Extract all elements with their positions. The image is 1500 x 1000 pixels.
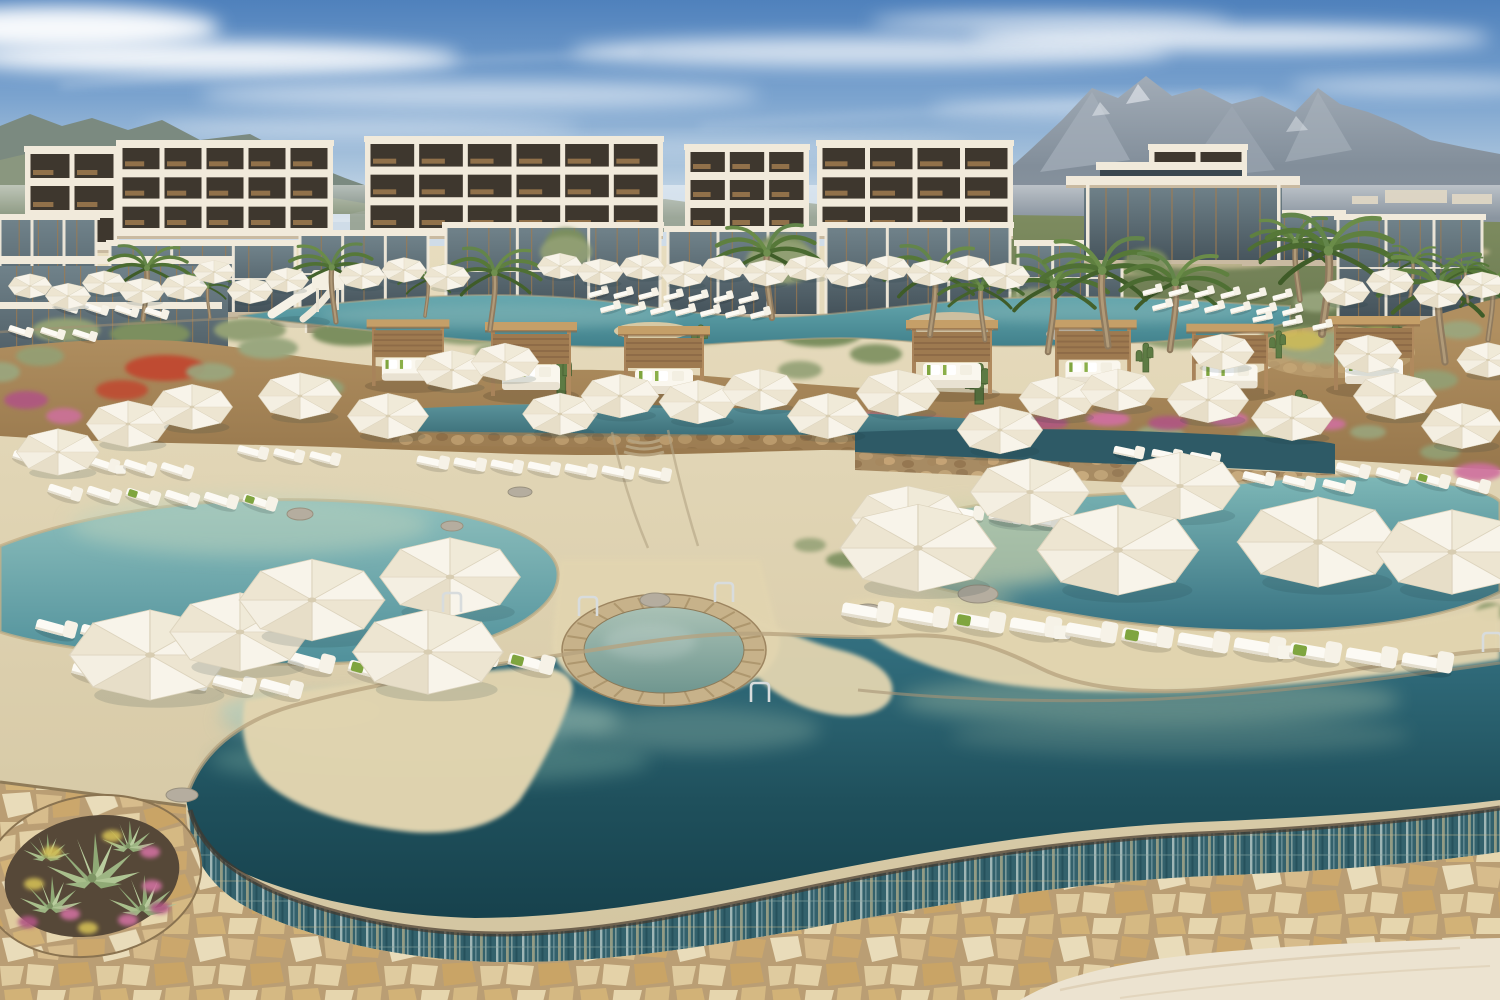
room-furniture	[920, 191, 943, 196]
balcony-slab	[123, 199, 160, 201]
room-furniture	[470, 159, 493, 164]
cloud	[870, 12, 1230, 32]
fascia	[822, 222, 1014, 228]
flower-patch	[24, 878, 44, 890]
fascia	[442, 222, 664, 228]
resort-rendering-image	[0, 0, 1500, 1000]
boulder	[287, 508, 313, 520]
room-furniture	[568, 159, 591, 164]
room-furniture	[209, 220, 228, 225]
room-furniture	[693, 192, 711, 197]
room-furniture	[968, 161, 991, 166]
room-furniture	[33, 170, 53, 175]
balcony-slab	[468, 197, 512, 199]
room-furniture	[293, 161, 312, 166]
balcony-slab	[249, 228, 286, 230]
bush	[96, 380, 148, 400]
balcony-slab	[614, 197, 658, 199]
balcony-slab	[823, 169, 866, 171]
balcony-slab	[691, 172, 725, 174]
room-furniture	[519, 189, 542, 194]
room-furniture	[968, 191, 991, 196]
room-furniture	[732, 164, 750, 169]
balcony-slab	[371, 228, 415, 230]
bush	[186, 363, 234, 381]
bush	[46, 408, 82, 424]
room-furniture	[470, 189, 493, 194]
balcony-slab	[419, 197, 463, 199]
bush	[4, 391, 48, 409]
balcony-slab	[870, 169, 913, 171]
room-furniture	[125, 161, 144, 166]
balcony-slab	[165, 169, 202, 171]
balcony-slab	[870, 199, 913, 201]
room-furniture	[732, 192, 750, 197]
room-furniture	[33, 202, 53, 207]
balcony-slab	[165, 199, 202, 201]
balcony-slab	[371, 167, 415, 169]
room-furniture	[293, 220, 312, 225]
balcony-slab	[468, 167, 512, 169]
balcony-slab	[730, 200, 764, 202]
room-furniture	[616, 189, 639, 194]
room-furniture	[732, 220, 750, 225]
fascia	[0, 214, 100, 220]
balcony-slab	[165, 228, 202, 230]
room-furniture	[251, 220, 270, 225]
room-furniture	[77, 170, 97, 175]
balcony-slab	[614, 167, 658, 169]
balcony-slab	[565, 167, 609, 169]
room-furniture	[422, 159, 445, 164]
balcony-slab	[918, 199, 961, 201]
room-furniture	[873, 161, 896, 166]
room-furniture	[77, 202, 97, 207]
room-furniture	[422, 189, 445, 194]
pavilion-mullion	[1237, 185, 1238, 264]
room-furniture	[167, 161, 186, 166]
balcony-slab	[207, 228, 244, 230]
room-furniture	[422, 220, 445, 225]
bush	[850, 344, 902, 364]
balcony-slab	[249, 169, 286, 171]
balcony-slab	[31, 210, 70, 212]
room-furniture	[373, 159, 396, 164]
cloud	[140, 119, 580, 137]
flower-patch	[150, 902, 170, 914]
bush	[238, 337, 298, 359]
column	[1385, 220, 1388, 316]
room-furniture	[568, 189, 591, 194]
bush	[794, 538, 826, 552]
room-furniture	[167, 220, 186, 225]
balcony-slab	[965, 169, 1008, 171]
room-furniture	[519, 159, 542, 164]
balcony-slab	[691, 200, 725, 202]
flower-patch	[140, 846, 160, 858]
flower-patch	[60, 908, 80, 920]
distant-building	[1352, 196, 1378, 204]
balcony-slab	[75, 178, 114, 180]
balcony-slab	[123, 169, 160, 171]
balcony-slab	[769, 172, 803, 174]
pavilion-clerestory	[1100, 170, 1242, 176]
balcony-slab	[730, 172, 764, 174]
pavilion-mullion	[1215, 185, 1216, 264]
balcony-slab	[823, 199, 866, 201]
room-furniture	[209, 191, 228, 196]
room-furniture	[825, 191, 848, 196]
room-furniture	[693, 164, 711, 169]
boulder	[640, 593, 670, 607]
room-furniture	[616, 159, 639, 164]
balcony-slab	[31, 178, 70, 180]
pavilion-mullion	[1259, 185, 1260, 264]
room-furniture	[251, 161, 270, 166]
room-furniture	[251, 191, 270, 196]
pavilion-mullion	[1193, 185, 1194, 264]
balcony-slab	[207, 169, 244, 171]
room-furniture	[920, 161, 943, 166]
pavilion-mullion	[1105, 185, 1106, 264]
room-furniture	[373, 220, 396, 225]
boulder	[508, 487, 532, 497]
balcony-slab	[965, 199, 1008, 201]
pavilion-roof	[1066, 176, 1300, 185]
room-furniture	[772, 192, 790, 197]
resort-aerial-scene	[0, 0, 1500, 1000]
room-furniture	[772, 220, 790, 225]
room-furniture	[772, 164, 790, 169]
room-furniture	[873, 191, 896, 196]
boulder	[441, 521, 463, 531]
fascia	[296, 230, 432, 236]
pavilion-upper-roof	[1096, 162, 1246, 170]
bush	[16, 346, 64, 366]
balcony-slab	[207, 199, 244, 201]
pavilion-roof-shadow	[1066, 185, 1300, 188]
room-furniture	[693, 220, 711, 225]
flower-patch	[118, 914, 138, 926]
bush	[1350, 425, 1386, 439]
distant-building	[1452, 194, 1492, 204]
cloud	[200, 82, 760, 108]
balcony-slab	[517, 167, 561, 169]
flower-patch	[78, 922, 98, 934]
flower-patch	[18, 916, 38, 928]
balcony-slab	[918, 169, 961, 171]
fascia	[106, 240, 299, 246]
room-furniture	[373, 189, 396, 194]
room-furniture	[125, 220, 144, 225]
pavilion-mullion	[1171, 185, 1172, 264]
balcony-slab	[769, 200, 803, 202]
balcony-slab	[419, 167, 463, 169]
distant-building	[1385, 190, 1447, 203]
room-furniture	[293, 191, 312, 196]
pavilion-glass	[1084, 185, 1282, 264]
flower-patch	[102, 830, 122, 842]
balcony-slab	[291, 199, 328, 201]
front-slab	[0, 302, 222, 309]
boulder	[166, 788, 198, 802]
balcony-slab	[517, 197, 561, 199]
balcony-slab	[291, 169, 328, 171]
room-furniture	[825, 161, 848, 166]
room-furniture	[209, 161, 228, 166]
balcony-slab	[75, 210, 114, 212]
balcony-slab	[371, 197, 415, 199]
balcony-slab	[565, 197, 609, 199]
room-furniture	[167, 191, 186, 196]
balcony-slab	[291, 228, 328, 230]
room-furniture	[125, 191, 144, 196]
flower-patch	[142, 880, 162, 892]
flower-patch	[42, 846, 62, 858]
balcony-slab	[123, 228, 160, 230]
balcony-slab	[249, 199, 286, 201]
